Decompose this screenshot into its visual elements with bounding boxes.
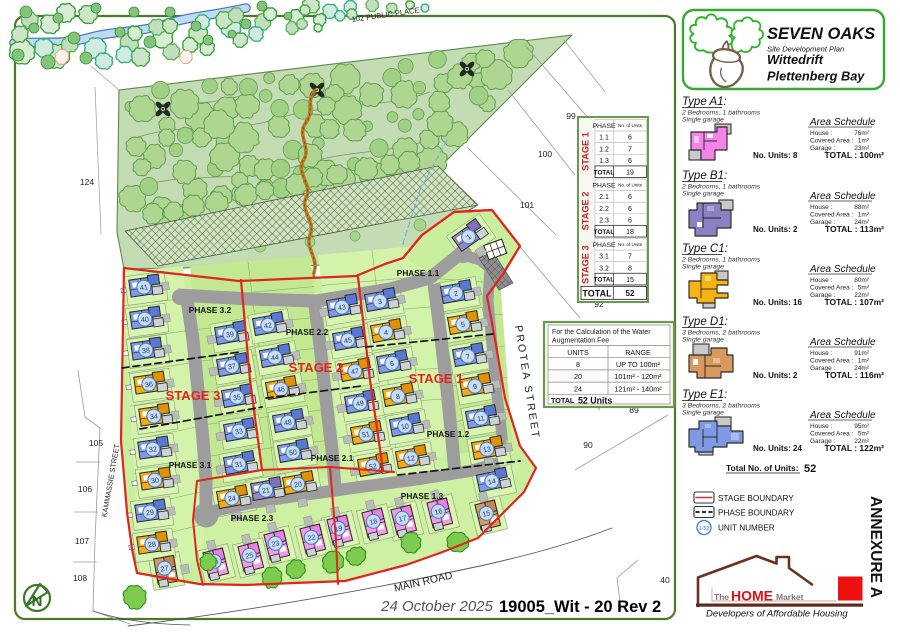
svg-text:House :: House : bbox=[810, 423, 833, 430]
svg-text:36: 36 bbox=[144, 379, 153, 389]
svg-text:Area Schedule: Area Schedule bbox=[809, 264, 876, 275]
svg-text:STAGE 3: STAGE 3 bbox=[581, 245, 591, 284]
svg-text:STAGE 2: STAGE 2 bbox=[581, 192, 591, 231]
svg-text:12: 12 bbox=[406, 453, 415, 463]
svg-text:3.1: 3.1 bbox=[599, 254, 609, 261]
svg-text:1m²: 1m² bbox=[858, 138, 870, 145]
svg-text:45: 45 bbox=[343, 335, 352, 345]
svg-text:29: 29 bbox=[145, 507, 154, 517]
svg-text:Augmentation Fee: Augmentation Fee bbox=[552, 338, 609, 345]
svg-text:95m²: 95m² bbox=[854, 423, 870, 430]
svg-text:No. Units: 2: No. Units: 2 bbox=[753, 225, 798, 234]
svg-text:RANGE: RANGE bbox=[625, 348, 651, 357]
svg-text:6: 6 bbox=[628, 217, 632, 224]
svg-text:28: 28 bbox=[147, 539, 156, 549]
svg-text:PHASE 1.1: PHASE 1.1 bbox=[397, 268, 440, 278]
svg-text:7: 7 bbox=[628, 254, 632, 261]
svg-text:51: 51 bbox=[361, 429, 370, 439]
svg-text:Type E1:: Type E1: bbox=[682, 389, 727, 401]
svg-text:HOME: HOME bbox=[731, 588, 773, 604]
svg-text:No. Units: 16: No. Units: 16 bbox=[753, 298, 802, 307]
svg-text:TOTAL : 100m²: TOTAL : 100m² bbox=[824, 150, 884, 160]
svg-text:House :: House : bbox=[810, 277, 833, 284]
svg-text:21: 21 bbox=[261, 485, 270, 495]
svg-text:TOTAL: TOTAL bbox=[594, 277, 615, 284]
svg-text:1-52: 1-52 bbox=[699, 526, 709, 532]
svg-text:Single garage: Single garage bbox=[682, 191, 724, 198]
svg-text:24: 24 bbox=[227, 493, 236, 503]
svg-text:76m²: 76m² bbox=[854, 130, 870, 137]
svg-text:34: 34 bbox=[149, 411, 158, 421]
svg-text:20: 20 bbox=[574, 372, 582, 381]
svg-text:2.2: 2.2 bbox=[599, 206, 609, 213]
svg-text:Single garage: Single garage bbox=[682, 337, 724, 344]
svg-text:8: 8 bbox=[628, 265, 632, 272]
svg-text:80m²: 80m² bbox=[854, 277, 870, 284]
svg-text:52 Units: 52 Units bbox=[578, 395, 612, 405]
svg-text:15: 15 bbox=[626, 277, 634, 284]
svg-text:33: 33 bbox=[234, 426, 243, 436]
svg-text:STAGE 3: STAGE 3 bbox=[166, 388, 221, 403]
svg-text:ANNEXURE A: ANNEXURE A bbox=[867, 496, 884, 598]
svg-text:TOTAL: TOTAL bbox=[551, 396, 575, 405]
svg-text:TOTAL : 107m²: TOTAL : 107m² bbox=[824, 297, 884, 307]
svg-text:40: 40 bbox=[660, 575, 670, 585]
svg-text:100: 100 bbox=[538, 149, 552, 159]
svg-text:TOTAL: TOTAL bbox=[582, 288, 612, 298]
svg-text:The: The bbox=[714, 592, 729, 602]
svg-text:52: 52 bbox=[804, 463, 816, 475]
svg-text:48: 48 bbox=[283, 417, 292, 427]
svg-text:50: 50 bbox=[288, 447, 297, 457]
svg-text:35: 35 bbox=[232, 392, 241, 402]
svg-text:31: 31 bbox=[234, 459, 243, 469]
svg-text:Covered Area :: Covered Area : bbox=[810, 138, 854, 145]
svg-text:PHASE: PHASE bbox=[592, 182, 616, 189]
svg-text:UNIT NUMBER: UNIT NUMBER bbox=[718, 524, 775, 533]
svg-text:House :: House : bbox=[810, 204, 833, 211]
svg-text:TOTAL : 113m²: TOTAL : 113m² bbox=[825, 224, 884, 234]
svg-text:Area Schedule: Area Schedule bbox=[809, 117, 876, 128]
svg-text:No. of Units: No. of Units bbox=[618, 183, 643, 188]
svg-text:27: 27 bbox=[160, 563, 169, 573]
svg-text:108: 108 bbox=[73, 573, 87, 583]
svg-text:107: 107 bbox=[75, 536, 89, 546]
svg-text:PHASE 3.2: PHASE 3.2 bbox=[189, 305, 232, 315]
svg-text:1m²: 1m² bbox=[858, 358, 870, 365]
svg-text:House :: House : bbox=[810, 350, 833, 357]
svg-text:3.2: 3.2 bbox=[599, 265, 609, 272]
svg-text:Area Schedule: Area Schedule bbox=[809, 191, 876, 202]
svg-text:10: 10 bbox=[400, 421, 409, 431]
svg-text:Area Schedule: Area Schedule bbox=[809, 337, 876, 348]
svg-text:Area Schedule: Area Schedule bbox=[809, 410, 876, 421]
svg-text:5m²: 5m² bbox=[858, 285, 870, 292]
svg-text:52: 52 bbox=[626, 289, 635, 298]
svg-text:No. Units: 24: No. Units: 24 bbox=[753, 444, 802, 453]
svg-text:Single garage: Single garage bbox=[682, 117, 724, 124]
svg-text:24: 24 bbox=[574, 384, 582, 393]
svg-text:Single garage: Single garage bbox=[682, 264, 724, 271]
svg-text:Type A1:: Type A1: bbox=[682, 96, 727, 108]
svg-text:49: 49 bbox=[355, 398, 364, 408]
svg-text:SEVEN OAKS: SEVEN OAKS bbox=[767, 25, 875, 43]
svg-text:No. Units: 8: No. Units: 8 bbox=[753, 151, 798, 160]
svg-text:PHASE 3.1: PHASE 3.1 bbox=[169, 460, 212, 470]
svg-text:Covered Area :: Covered Area : bbox=[810, 212, 854, 219]
svg-text:47: 47 bbox=[350, 366, 359, 376]
svg-text:121m² - 140m²: 121m² - 140m² bbox=[614, 384, 662, 393]
svg-text:STAGE BOUNDARY: STAGE BOUNDARY bbox=[718, 494, 794, 503]
svg-text:Developers of Affordable Housi: Developers of Affordable Housing bbox=[706, 609, 848, 620]
svg-text:Market: Market bbox=[776, 592, 804, 602]
svg-text:STAGE 1: STAGE 1 bbox=[581, 132, 591, 171]
svg-text:2.1: 2.1 bbox=[599, 194, 609, 201]
svg-text:90: 90 bbox=[583, 440, 593, 450]
svg-text:1.1: 1.1 bbox=[599, 135, 609, 142]
svg-text:PHASE 2.2: PHASE 2.2 bbox=[286, 327, 329, 337]
svg-text:41: 41 bbox=[139, 282, 148, 292]
svg-text:101: 101 bbox=[520, 200, 534, 210]
svg-text:101m² - 120m²: 101m² - 120m² bbox=[614, 372, 662, 381]
svg-text:For the Calculation of the Wat: For the Calculation of the Water bbox=[552, 329, 651, 336]
svg-text:11: 11 bbox=[476, 413, 485, 423]
svg-text:STAGE 1: STAGE 1 bbox=[409, 371, 464, 386]
svg-text:TOTAL: TOTAL bbox=[594, 169, 615, 176]
svg-text:2 Bedrooms, 1 bathrooms: 2 Bedrooms, 1 bathrooms bbox=[681, 257, 761, 264]
svg-text:Covered Area :: Covered Area : bbox=[810, 431, 854, 438]
svg-text:7: 7 bbox=[628, 146, 632, 153]
svg-text:5m²: 5m² bbox=[858, 431, 870, 438]
svg-text:PHASE 2.1: PHASE 2.1 bbox=[311, 453, 354, 463]
svg-text:Covered Area :: Covered Area : bbox=[810, 285, 854, 292]
svg-text:91m²: 91m² bbox=[854, 350, 870, 357]
svg-text:24 October 2025: 24 October 2025 bbox=[380, 598, 493, 615]
svg-text:6: 6 bbox=[628, 194, 632, 201]
svg-text:Total No. of Units:: Total No. of Units: bbox=[726, 463, 799, 473]
svg-text:Type C1:: Type C1: bbox=[682, 243, 728, 255]
svg-text:19005_Wit - 20 Rev 2: 19005_Wit - 20 Rev 2 bbox=[499, 598, 661, 616]
svg-text:6: 6 bbox=[628, 158, 632, 165]
svg-text:PHASE 1.2: PHASE 1.2 bbox=[427, 429, 470, 439]
svg-text:Plettenberg Bay: Plettenberg Bay bbox=[767, 69, 865, 84]
svg-text:UNITS: UNITS bbox=[567, 348, 589, 357]
svg-text:1.3: 1.3 bbox=[599, 158, 609, 165]
svg-text:PHASE 1.3: PHASE 1.3 bbox=[401, 491, 444, 501]
svg-text:STAGE 2: STAGE 2 bbox=[289, 360, 344, 375]
svg-text:N: N bbox=[32, 593, 43, 610]
svg-text:3 Bedrooms, 2 bathrooms: 3 Bedrooms, 2 bathrooms bbox=[682, 330, 761, 337]
svg-text:Single garage: Single garage bbox=[682, 410, 724, 417]
svg-text:2 Bedrooms, 1 bathrooms: 2 Bedrooms, 1 bathrooms bbox=[681, 110, 761, 117]
svg-text:TOTAL: TOTAL bbox=[594, 229, 615, 236]
svg-text:8: 8 bbox=[576, 360, 580, 369]
svg-text:No. of Units: No. of Units bbox=[618, 242, 643, 247]
svg-text:2.3: 2.3 bbox=[599, 217, 609, 224]
svg-text:42: 42 bbox=[263, 320, 272, 330]
svg-text:105: 105 bbox=[89, 438, 103, 448]
svg-text:124: 124 bbox=[80, 177, 94, 187]
svg-text:1m²: 1m² bbox=[858, 212, 870, 219]
svg-text:46: 46 bbox=[276, 384, 285, 394]
svg-text:99: 99 bbox=[566, 111, 576, 121]
svg-text:32: 32 bbox=[148, 444, 157, 454]
svg-text:House :: House : bbox=[810, 130, 833, 137]
svg-text:PHASE 2.3: PHASE 2.3 bbox=[231, 513, 274, 523]
svg-text:19: 19 bbox=[626, 170, 634, 177]
svg-text:43: 43 bbox=[337, 302, 346, 312]
svg-text:PHASE BOUNDARY: PHASE BOUNDARY bbox=[718, 509, 795, 518]
svg-text:38: 38 bbox=[141, 345, 150, 355]
svg-text:1.2: 1.2 bbox=[599, 146, 609, 153]
svg-text:2 Bedrooms, 1 bathrooms: 2 Bedrooms, 1 bathrooms bbox=[681, 184, 761, 191]
svg-text:PHASE: PHASE bbox=[592, 242, 616, 249]
svg-text:6: 6 bbox=[628, 135, 632, 142]
svg-text:UP TO 100m²: UP TO 100m² bbox=[616, 360, 661, 369]
svg-text:Type D1:: Type D1: bbox=[682, 316, 728, 328]
svg-text:6: 6 bbox=[628, 206, 632, 213]
svg-text:TOTAL : 116m²: TOTAL : 116m² bbox=[825, 370, 884, 380]
svg-text:37: 37 bbox=[227, 361, 236, 371]
svg-text:30: 30 bbox=[150, 475, 159, 485]
svg-text:Covered Area :: Covered Area : bbox=[810, 358, 854, 365]
svg-text:88m²: 88m² bbox=[854, 204, 870, 211]
svg-text:106: 106 bbox=[78, 484, 92, 494]
svg-text:Type B1:: Type B1: bbox=[682, 170, 727, 182]
svg-text:PHASE: PHASE bbox=[592, 123, 616, 130]
svg-text:Wittedrift: Wittedrift bbox=[767, 52, 824, 67]
svg-text:20: 20 bbox=[293, 479, 302, 489]
svg-text:44: 44 bbox=[270, 352, 279, 362]
svg-text:No. Units: 2: No. Units: 2 bbox=[753, 371, 798, 380]
svg-text:40: 40 bbox=[140, 314, 149, 324]
svg-text:13: 13 bbox=[482, 444, 491, 454]
svg-text:TOTAL : 122m²: TOTAL : 122m² bbox=[824, 443, 884, 453]
svg-text:3 Bedrooms, 2 bathrooms: 3 Bedrooms, 2 bathrooms bbox=[682, 403, 761, 410]
svg-text:No. of Units: No. of Units bbox=[618, 123, 643, 128]
svg-text:18: 18 bbox=[626, 229, 634, 236]
svg-text:39: 39 bbox=[225, 329, 234, 339]
